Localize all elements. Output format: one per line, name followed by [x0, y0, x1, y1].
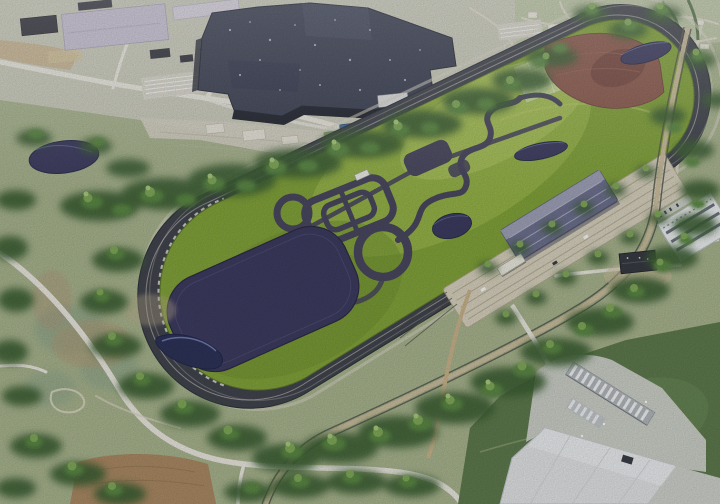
aerial-rendering-proving-ground [0, 0, 720, 504]
aerial-scene [0, 0, 720, 504]
photo-grain [0, 0, 720, 504]
